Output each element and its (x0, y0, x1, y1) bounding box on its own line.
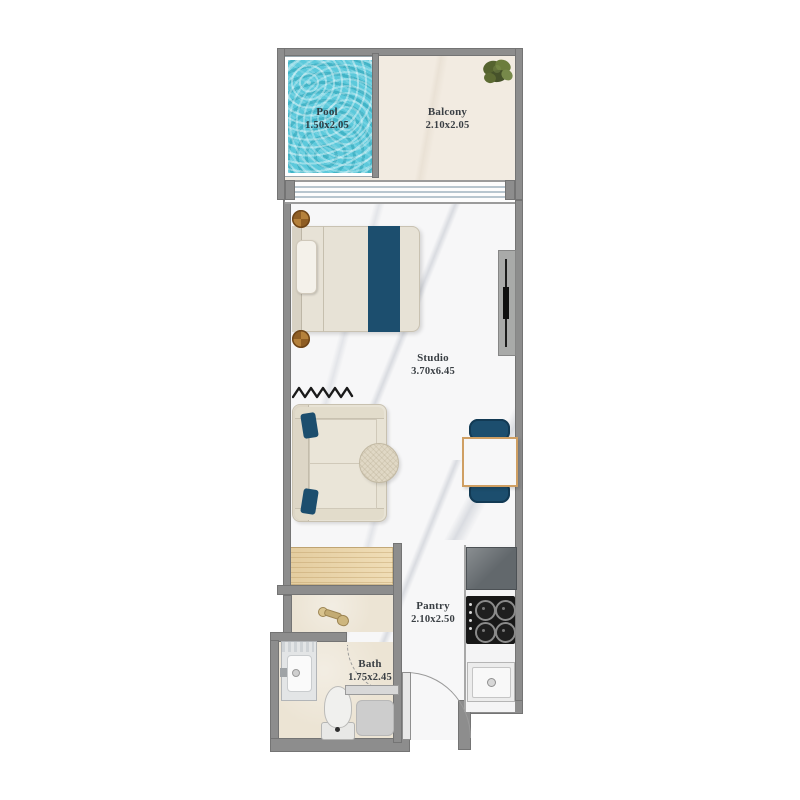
dining-table (462, 437, 518, 487)
bath-name: Bath (337, 657, 403, 671)
wall-left-upper (277, 48, 285, 200)
wall-bottom (270, 738, 410, 752)
balcony-dims: 2.10x2.05 (380, 119, 515, 133)
studio-dims: 3.70x6.45 (377, 365, 489, 379)
wall-left-studio (283, 200, 291, 595)
sliding-door-stub-left (285, 180, 295, 200)
studio-name: Studio (377, 351, 489, 365)
shower-fixture-icon (318, 602, 348, 628)
wall-bath-left (270, 640, 279, 752)
sliding-door (285, 180, 515, 204)
bath-dims: 1.75x2.45 (337, 671, 403, 685)
sliding-door-stub-right (505, 180, 515, 200)
bed-runner (368, 226, 400, 332)
plant-icon (478, 56, 516, 92)
pool-label: Pool 1.50x2.05 (285, 105, 369, 133)
vanity-sink (281, 641, 317, 701)
entrance-door-leaf (402, 672, 411, 740)
pantry-label: Pantry 2.10x2.50 (400, 599, 466, 627)
bed (292, 226, 420, 332)
studio-label: Studio 3.70x6.45 (377, 351, 489, 379)
side-table-icon (292, 330, 310, 348)
wall-pool-divider (372, 53, 379, 178)
bed-pillow (296, 240, 317, 294)
kitchen-faucet-icon (487, 678, 496, 687)
bed-blanket-seam (323, 226, 324, 332)
tv-icon (498, 250, 516, 356)
wardrobe (290, 547, 393, 585)
wall-top (277, 48, 523, 56)
pantry-dims: 2.10x2.50 (400, 613, 466, 627)
ottoman (359, 443, 399, 483)
balcony-name: Balcony (380, 105, 515, 119)
bath-label: Bath 1.75x2.45 (337, 657, 403, 685)
vanity-faucet-icon (280, 668, 287, 677)
side-table-icon (292, 210, 310, 228)
wall-below-wardrobe (277, 585, 399, 595)
kitchen-sink (467, 662, 515, 702)
bath-door-leaf (345, 685, 399, 695)
pool-dims: 1.50x2.05 (285, 119, 369, 133)
vanity-shelf (282, 642, 314, 652)
toilet-flush-dot (335, 727, 340, 732)
tv-screen-center (503, 287, 509, 319)
wall-bath-pantry-divider (393, 543, 402, 743)
floor-plan: Pool 1.50x2.05 Balcony 2.10x2.05 Studio … (0, 0, 800, 800)
pantry-name: Pantry (400, 599, 466, 613)
balcony-label: Balcony 2.10x2.05 (380, 105, 515, 133)
pool-name: Pool (285, 105, 369, 119)
wall-right-upper (515, 48, 523, 200)
cooktop-icon (466, 596, 515, 644)
bath-mat (356, 700, 394, 736)
vanity-drain (292, 669, 300, 677)
zigzag-symbol-icon (292, 384, 354, 400)
fridge (466, 547, 517, 590)
